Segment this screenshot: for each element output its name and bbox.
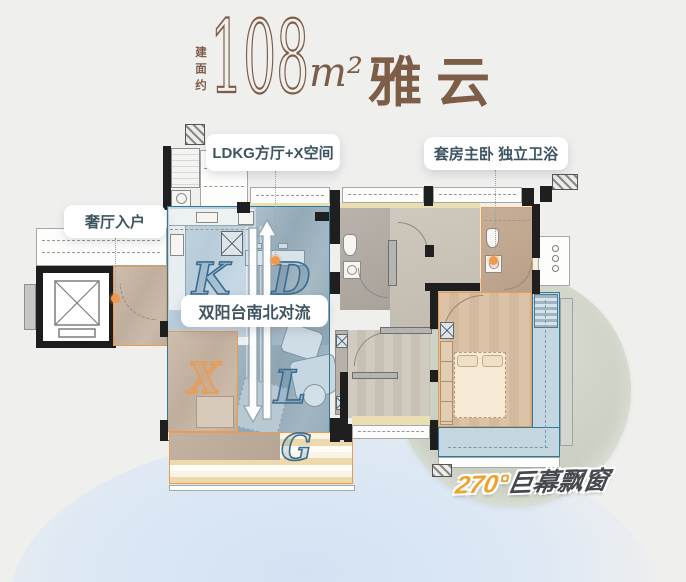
outer-ledge [560,298,573,446]
pillow [482,355,503,367]
wall-segment [160,420,168,441]
window-dash [358,431,424,432]
wall-stub [380,327,432,334]
wall-segment [344,424,352,442]
window-dash [439,194,516,195]
title-area-prefix: 建面约 [192,46,208,96]
callout-suite: 套房主卧 独立卫浴 [424,137,568,170]
toilet [343,234,357,256]
leader-line-entry [115,238,116,294]
pillow [457,355,478,367]
leader-dot-suite [489,256,498,265]
wall-segment [430,291,438,329]
callout-entry: 奢厅入户 [64,205,166,238]
wall-segment [424,186,433,206]
leader-dot-entry [111,294,120,303]
wall-segment [330,190,340,244]
callout-ldkg: LDKG方厅+X空间 [206,134,340,171]
window-sill-band [352,416,430,425]
window-dash [256,195,324,196]
window-dash [348,194,418,195]
wardrobe-box [440,322,454,339]
bay-degree-text: 270° [453,470,510,500]
callout-cross-vent-label: 双阳台南北对流 [198,299,310,323]
window-band [342,187,424,203]
window-band [352,425,430,439]
pipe-circle [552,265,559,272]
shower-dash [484,220,530,221]
title-area-number: 108 [210,12,309,104]
callout-cross-vent: 双阳台南北对流 [181,295,328,327]
wall-segment [160,321,168,337]
callout-suite-label: 套房主卧 独立卫浴 [434,143,558,164]
floorplan-poster: K D X L G 奢厅入户 LDKG方厅+X空间 套房主卧 独立卫浴 双阳台南… [0,0,686,582]
pipe-circle [552,255,559,262]
corridor-dash [42,240,160,241]
bay-dashed-line [545,300,546,448]
wall-segment [540,186,552,202]
balcony-floor [170,433,280,460]
wall-segment [425,283,480,291]
wall-segment [430,420,438,450]
wall-segment [425,245,434,257]
structure-hatch [432,464,452,477]
window-band [433,187,522,203]
wall-stub [352,372,398,379]
bay-window-mullions [534,294,558,328]
structure-hatch [185,124,205,145]
wall-segment [330,418,340,442]
bay-name-text: 巨幕飘窗 [505,466,611,497]
elevator-shaft [36,266,116,348]
structure-hatch [552,174,578,190]
elevator-cross-icon [43,273,109,341]
pipe-circle [552,245,559,252]
bay-dashed-line [448,447,548,448]
suite-toilet [486,228,499,248]
wall-stub [24,284,36,330]
wall-segment [163,146,171,210]
wall-segment [532,270,540,294]
callout-ldkg-label: LDKG方厅+X空间 [212,142,333,163]
corridor-dash [42,252,160,253]
room-letter-balcony: G [281,430,312,466]
leader-line-ldkg [275,171,276,255]
wall-stub [388,240,397,286]
title-area-unit: m² [309,50,363,96]
washer [171,190,191,207]
bay-window-bottom [438,427,560,457]
wall-segment [330,272,340,294]
wall-segment [532,204,540,258]
title-unit-name: 雅云 [368,38,504,117]
tall-cabinet [171,148,200,188]
wardrobe-box [336,334,348,348]
leader-dot-ldkg [271,256,280,265]
wall-segment [430,370,438,382]
leader-line-suite [495,170,496,256]
callout-entry-label: 奢厅入户 [85,211,145,232]
utility-dash [204,186,244,187]
balcony-outer-frame [169,485,355,491]
master-wardrobe [440,341,453,425]
room-letter-living: L [274,364,306,410]
room-letter-flex: X [188,358,221,400]
bay-window-label: 270°巨幕飘窗 [446,460,619,502]
